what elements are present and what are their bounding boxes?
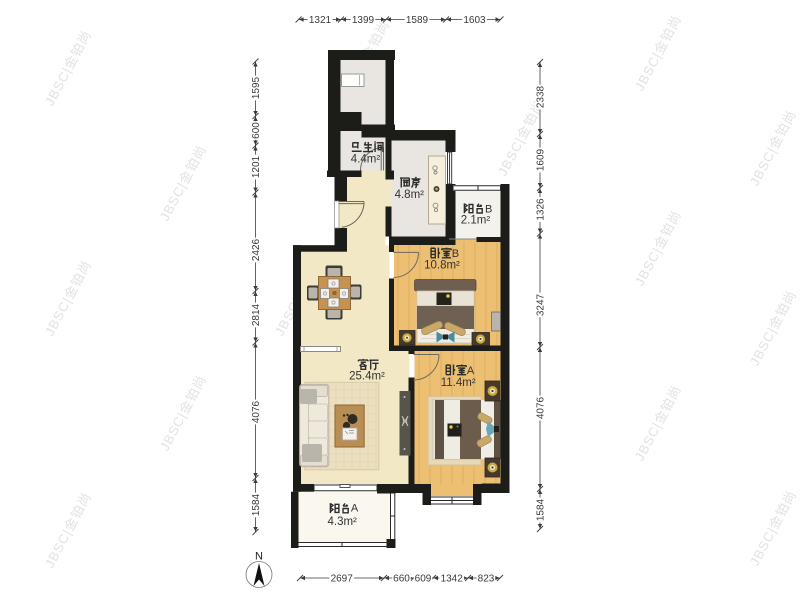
svg-text:1326: 1326 — [535, 198, 546, 221]
svg-text:1595: 1595 — [251, 76, 262, 99]
svg-text:823: 823 — [478, 573, 495, 584]
svg-text:11.4m²: 11.4m² — [441, 377, 476, 389]
svg-text:2814: 2814 — [251, 303, 262, 326]
svg-text:1589: 1589 — [406, 15, 429, 26]
svg-text:1342: 1342 — [441, 573, 464, 584]
svg-text:1584: 1584 — [251, 493, 262, 516]
svg-text:4.4m²: 4.4m² — [351, 154, 381, 166]
svg-text:B: B — [452, 248, 459, 260]
svg-text:600: 600 — [251, 122, 262, 139]
svg-text:1399: 1399 — [352, 15, 375, 26]
svg-text:2338: 2338 — [535, 85, 546, 108]
svg-text:660: 660 — [393, 573, 410, 584]
svg-text:N: N — [255, 551, 263, 563]
svg-text:2697: 2697 — [331, 573, 354, 584]
svg-text:A: A — [351, 503, 359, 515]
svg-text:3247: 3247 — [535, 293, 546, 316]
svg-text:1603: 1603 — [463, 15, 486, 26]
svg-text:2426: 2426 — [251, 238, 262, 261]
svg-text:1584: 1584 — [535, 498, 546, 521]
svg-text:609: 609 — [415, 573, 432, 584]
svg-text:10.8m²: 10.8m² — [424, 260, 460, 272]
svg-text:1321: 1321 — [309, 15, 332, 26]
svg-text:2.1m²: 2.1m² — [461, 214, 491, 226]
svg-text:4.3m²: 4.3m² — [327, 516, 357, 528]
svg-text:4076: 4076 — [251, 400, 262, 423]
svg-text:A: A — [467, 365, 475, 377]
svg-text:25.4m²: 25.4m² — [349, 371, 385, 383]
svg-text:4.8m²: 4.8m² — [395, 189, 425, 201]
svg-text:4076: 4076 — [535, 396, 546, 419]
svg-text:1609: 1609 — [535, 148, 546, 171]
svg-text:1201: 1201 — [251, 155, 262, 178]
